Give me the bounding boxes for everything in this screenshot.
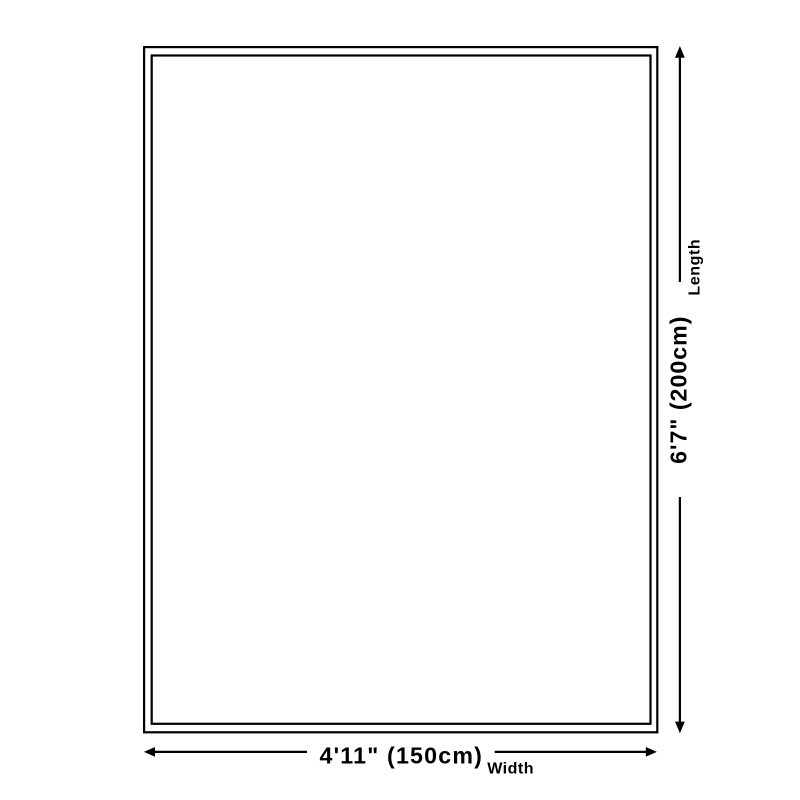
svg-text:Width: Width: [487, 761, 534, 778]
svg-text:Length: Length: [687, 239, 704, 296]
svg-text:6'7" (200cm): 6'7" (200cm): [666, 316, 692, 464]
svg-text:4'11" (150cm): 4'11" (150cm): [319, 742, 483, 768]
